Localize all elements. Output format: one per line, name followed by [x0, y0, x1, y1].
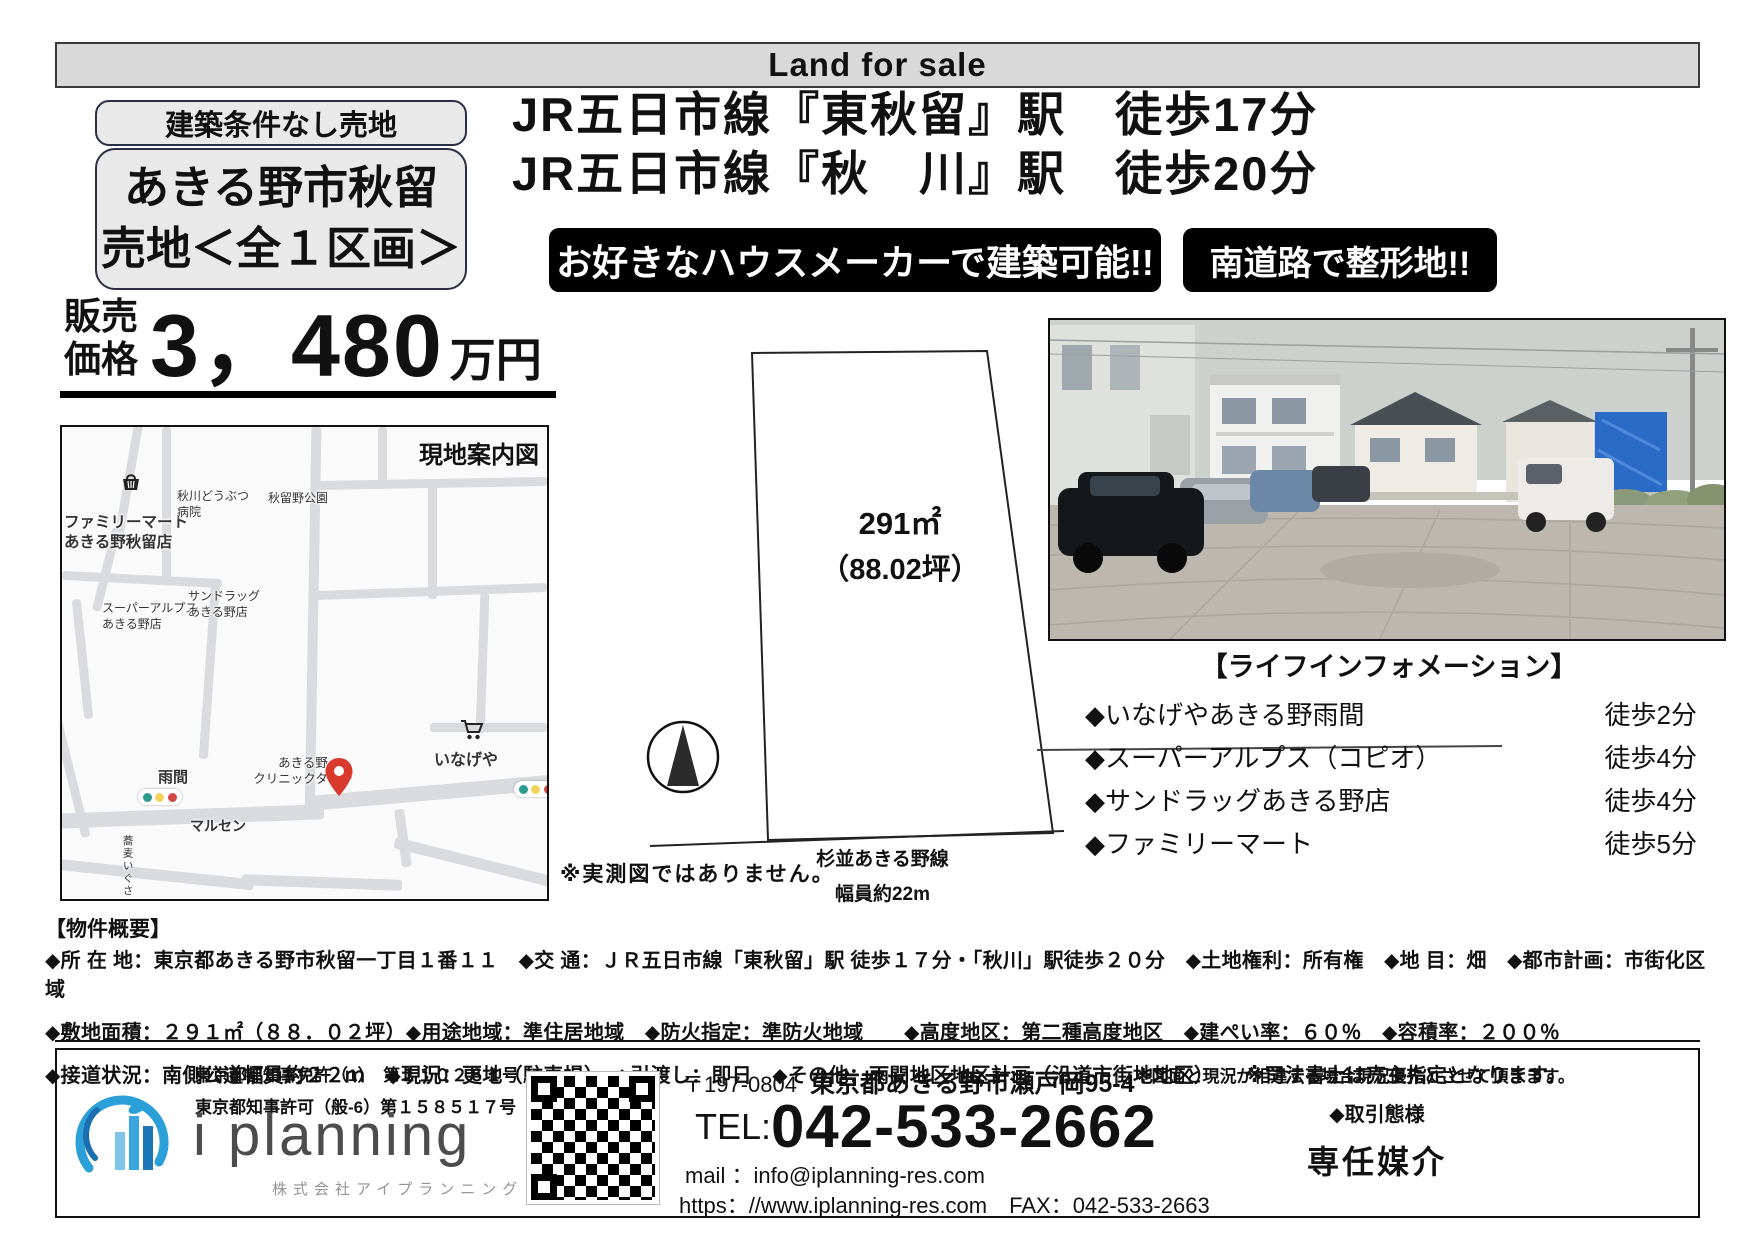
life-info-name: ◆スーパーアルプス（コピオ） [1085, 738, 1441, 775]
map-road [60, 859, 254, 891]
plot-tsubo-text: （88.02坪） [760, 546, 1040, 588]
life-info-time: 徒歩5分 [1605, 824, 1697, 861]
life-info-row: ◆スーパーアルプス（コピオ） 徒歩4分 [1075, 735, 1703, 778]
qr-code [527, 1072, 659, 1204]
traffic-light-icon [514, 781, 549, 797]
map-label-familymart: ファミリーマート あきる野秋留店 [64, 513, 188, 553]
badge-city-text: あきる野市秋留 [124, 158, 438, 219]
transaction-type: ◆取引態様 専任媒介 [1257, 1098, 1497, 1183]
site-photo [1048, 318, 1726, 641]
ribbon-housemaker: お好きなハウスメーカーで建築可能!! [549, 228, 1161, 292]
top-banner-text: Land for sale [768, 46, 986, 84]
road-name: 杉並あきる野線 [790, 844, 975, 871]
headline-line1: JR五日市線『東秋留』駅 徒歩17分 [512, 86, 1542, 145]
footer: 東京都都知事免許（1） 第１１０２６１号 東京都知事許可（般-6）第１５８５１７… [55, 1048, 1700, 1218]
headline-line2: JR五日市線『秋 川』駅 徒歩20分 [512, 145, 1542, 204]
map-label-inageya: いなげや [434, 751, 498, 772]
footer-divider [55, 1040, 1700, 1042]
company-name-jp: 株式会社アイプランニング [272, 1178, 523, 1199]
badge-location: あきる野市秋留 売地＜全１区画＞ [95, 148, 467, 290]
overview-line: ◆所 在 地：東京都あきる野市秋留一丁目１番１１ ◆交 通：ＪＲ五日市線「東秋留… [45, 944, 1713, 1002]
area-map: 現地案内図 ファミリーマート あきる野秋留店 秋川どうぶつ 病院 秋留野公園 ス… [60, 425, 549, 901]
map-label-superalps: スーパーアルプス あきる野店 [102, 601, 197, 632]
ribbon-housemaker-text: お好きなハウスメーカーで建築可能!! [556, 234, 1154, 286]
map-label-soba: 蕎麦いぐさ [120, 835, 134, 898]
price-unit: 万円 [450, 337, 542, 385]
license-line1: 東京都都知事免許（1） 第１１０２６１号 [195, 1060, 519, 1092]
life-info-time: 徒歩4分 [1605, 738, 1697, 775]
top-banner: Land for sale [55, 42, 1700, 88]
phone-row: TEL: 042-533-2662 [695, 1092, 1157, 1161]
map-road [430, 723, 547, 732]
road-width: 幅員約22m [790, 879, 975, 906]
life-info-time: 徒歩4分 [1605, 781, 1697, 818]
map-road [428, 483, 437, 599]
plot-outline [752, 351, 1053, 840]
price-amount: 3，480 [150, 306, 444, 385]
company-logo-icon [67, 1080, 192, 1192]
life-info-name: ◆ファミリーマート [1085, 824, 1313, 861]
price-block: 販売 価格 3，480 万円 [60, 296, 556, 398]
price-label: 販売 価格 [64, 296, 138, 385]
life-info-row: ◆サンドラッグあきる野店 徒歩4分 [1075, 778, 1703, 821]
ribbon-south-road-text: 南道路で整形地!! [1210, 236, 1471, 285]
qr-finder [531, 1076, 557, 1102]
footer-note: ※図面と現況が相違する場合現況優先とさせて頂きます。 [1135, 1062, 1575, 1087]
road-label: 杉並あきる野線 幅員約22m [790, 844, 975, 906]
map-label-amema: 雨間 [158, 768, 188, 788]
life-info-row: ◆ファミリーマート 徒歩5分 [1075, 821, 1703, 864]
plot-area-text: 291㎡ [760, 498, 1040, 543]
badge-no-building-conditions: 建築条件なし売地 [95, 100, 467, 146]
shopping-cart-icon [460, 719, 484, 741]
company-name-en: i planning [193, 1102, 471, 1169]
mail-row: mail ：info@iplanning-res.com [685, 1158, 985, 1190]
overview-title: 【物件概要】 [45, 913, 171, 943]
life-info-title: 【ライフインフォメーション】 [1075, 645, 1703, 684]
life-info-name: ◆サンドラッグあきる野店 [1085, 781, 1390, 818]
map-label-sundrug: サンドラッグ あきる野店 [188, 589, 260, 620]
map-pin-icon [324, 757, 354, 797]
map-road [162, 427, 171, 585]
map-road [62, 571, 222, 588]
transaction-type-value: 専任媒介 [1257, 1137, 1497, 1183]
traffic-light-icon [138, 789, 182, 805]
map-label-park: 秋留野公園 [268, 491, 328, 507]
badge-condition-text: 建築条件なし売地 [165, 102, 397, 144]
map-title: 現地案内図 [419, 435, 539, 470]
tel-number: 042-533-2662 [771, 1092, 1157, 1161]
price-label-line1: 販売 [64, 296, 138, 339]
life-info-time: 徒歩2分 [1605, 695, 1697, 732]
tel-label: TEL: [695, 1106, 771, 1148]
station-headlines: JR五日市線『東秋留』駅 徒歩17分 JR五日市線『秋 川』駅 徒歩20分 [512, 86, 1542, 204]
web-fax-row: https：//www.iplanning-res.com FAX：042-53… [679, 1188, 1210, 1220]
qr-finder [531, 1174, 557, 1200]
map-label-vet: 秋川どうぶつ 病院 [177, 489, 249, 520]
map-road [393, 837, 549, 888]
badge-lot-text: 売地＜全１区画＞ [101, 219, 461, 280]
store-basket-icon [120, 471, 142, 492]
life-info-name: ◆いなげやあきる野雨間 [1085, 695, 1364, 732]
map-label-marusen: マルセン [190, 817, 246, 835]
life-info-row: ◆いなげやあきる野雨間 徒歩2分 [1075, 692, 1703, 735]
map-road [476, 593, 490, 733]
map-road [242, 874, 402, 891]
qr-finder [629, 1076, 655, 1102]
life-information: 【ライフインフォメーション】 ◆いなげやあきる野雨間 徒歩2分 ◆スーパーアルプ… [1075, 645, 1703, 864]
map-road [72, 599, 93, 719]
transaction-type-label: ◆取引態様 [1257, 1098, 1497, 1127]
ribbon-south-road: 南道路で整形地!! [1183, 228, 1497, 292]
price-label-line2: 価格 [64, 339, 138, 382]
